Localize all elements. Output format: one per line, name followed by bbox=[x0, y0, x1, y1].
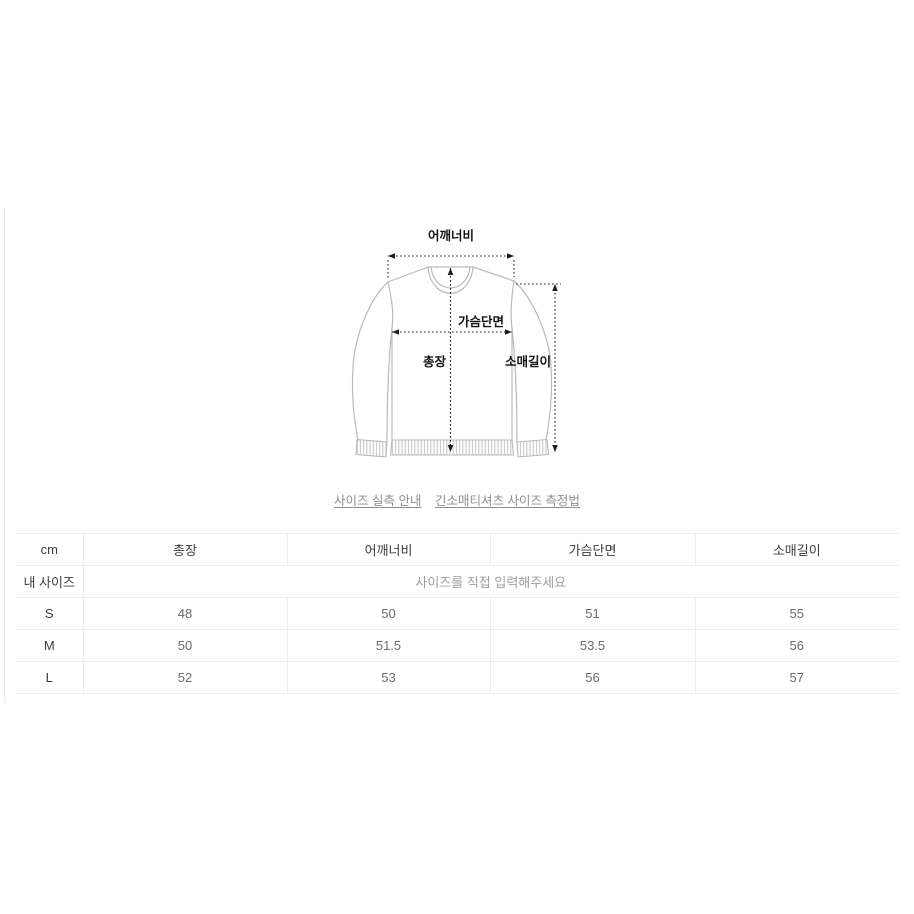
column-header-unit: cm bbox=[16, 534, 83, 566]
value-cell: 55 bbox=[695, 598, 898, 630]
measurement-lines bbox=[388, 256, 561, 451]
garment-measurement-diagram: 어깨너비 가슴단면 총장 소매길이 bbox=[330, 215, 590, 475]
value-cell: 50 bbox=[83, 630, 287, 662]
my-size-input-cell[interactable]: 사이즈를 직접 입력해주세요 bbox=[83, 566, 898, 598]
value-cell: 53 bbox=[287, 662, 490, 694]
total-length-label: 총장 bbox=[423, 354, 447, 369]
value-cell: 50 bbox=[287, 598, 490, 630]
value-cell: 51.5 bbox=[287, 630, 490, 662]
size-row-m: M 50 51.5 53.5 56 bbox=[16, 630, 898, 662]
value-cell: 52 bbox=[83, 662, 287, 694]
garment-diagram-svg: 어깨너비 가슴단면 총장 소매길이 bbox=[330, 215, 590, 475]
column-header-total-length: 총장 bbox=[83, 534, 287, 566]
value-cell: 57 bbox=[695, 662, 898, 694]
size-spec-table: cm 총장 어깨너비 가슴단면 소매길이 내 사이즈 사이즈를 직접 입력해주세… bbox=[16, 533, 898, 694]
size-table-header-row: cm 총장 어깨너비 가슴단면 소매길이 bbox=[16, 534, 898, 566]
my-size-row: 내 사이즈 사이즈를 직접 입력해주세요 bbox=[16, 566, 898, 598]
size-guide-links: 사이즈 실측 안내 긴소매티셔츠 사이즈 측정법 bbox=[0, 493, 914, 509]
column-header-shoulder-width: 어깨너비 bbox=[287, 534, 490, 566]
size-row-s: S 48 50 51 55 bbox=[16, 598, 898, 630]
value-cell: 51 bbox=[490, 598, 695, 630]
page-edge-divider bbox=[4, 207, 5, 703]
size-name-cell: M bbox=[16, 630, 83, 662]
column-header-sleeve-length: 소매길이 bbox=[695, 534, 898, 566]
chest-width-label: 가슴단면 bbox=[458, 314, 504, 329]
size-row-l: L 52 53 56 57 bbox=[16, 662, 898, 694]
measurement-arrowheads bbox=[388, 253, 558, 452]
size-name-cell: L bbox=[16, 662, 83, 694]
value-cell: 56 bbox=[490, 662, 695, 694]
shoulder-width-label: 어깨너비 bbox=[428, 228, 474, 243]
sleeve-length-label: 소매길이 bbox=[505, 354, 551, 369]
size-name-cell: S bbox=[16, 598, 83, 630]
size-measure-guide-link[interactable]: 사이즈 실측 안내 bbox=[334, 494, 421, 508]
value-cell: 56 bbox=[695, 630, 898, 662]
long-sleeve-measure-method-link[interactable]: 긴소매티셔츠 사이즈 측정법 bbox=[435, 494, 580, 508]
value-cell: 53.5 bbox=[490, 630, 695, 662]
garment-rib-bands bbox=[356, 440, 549, 458]
column-header-chest-width: 가슴단면 bbox=[490, 534, 695, 566]
my-size-label: 내 사이즈 bbox=[16, 566, 83, 598]
value-cell: 48 bbox=[83, 598, 287, 630]
